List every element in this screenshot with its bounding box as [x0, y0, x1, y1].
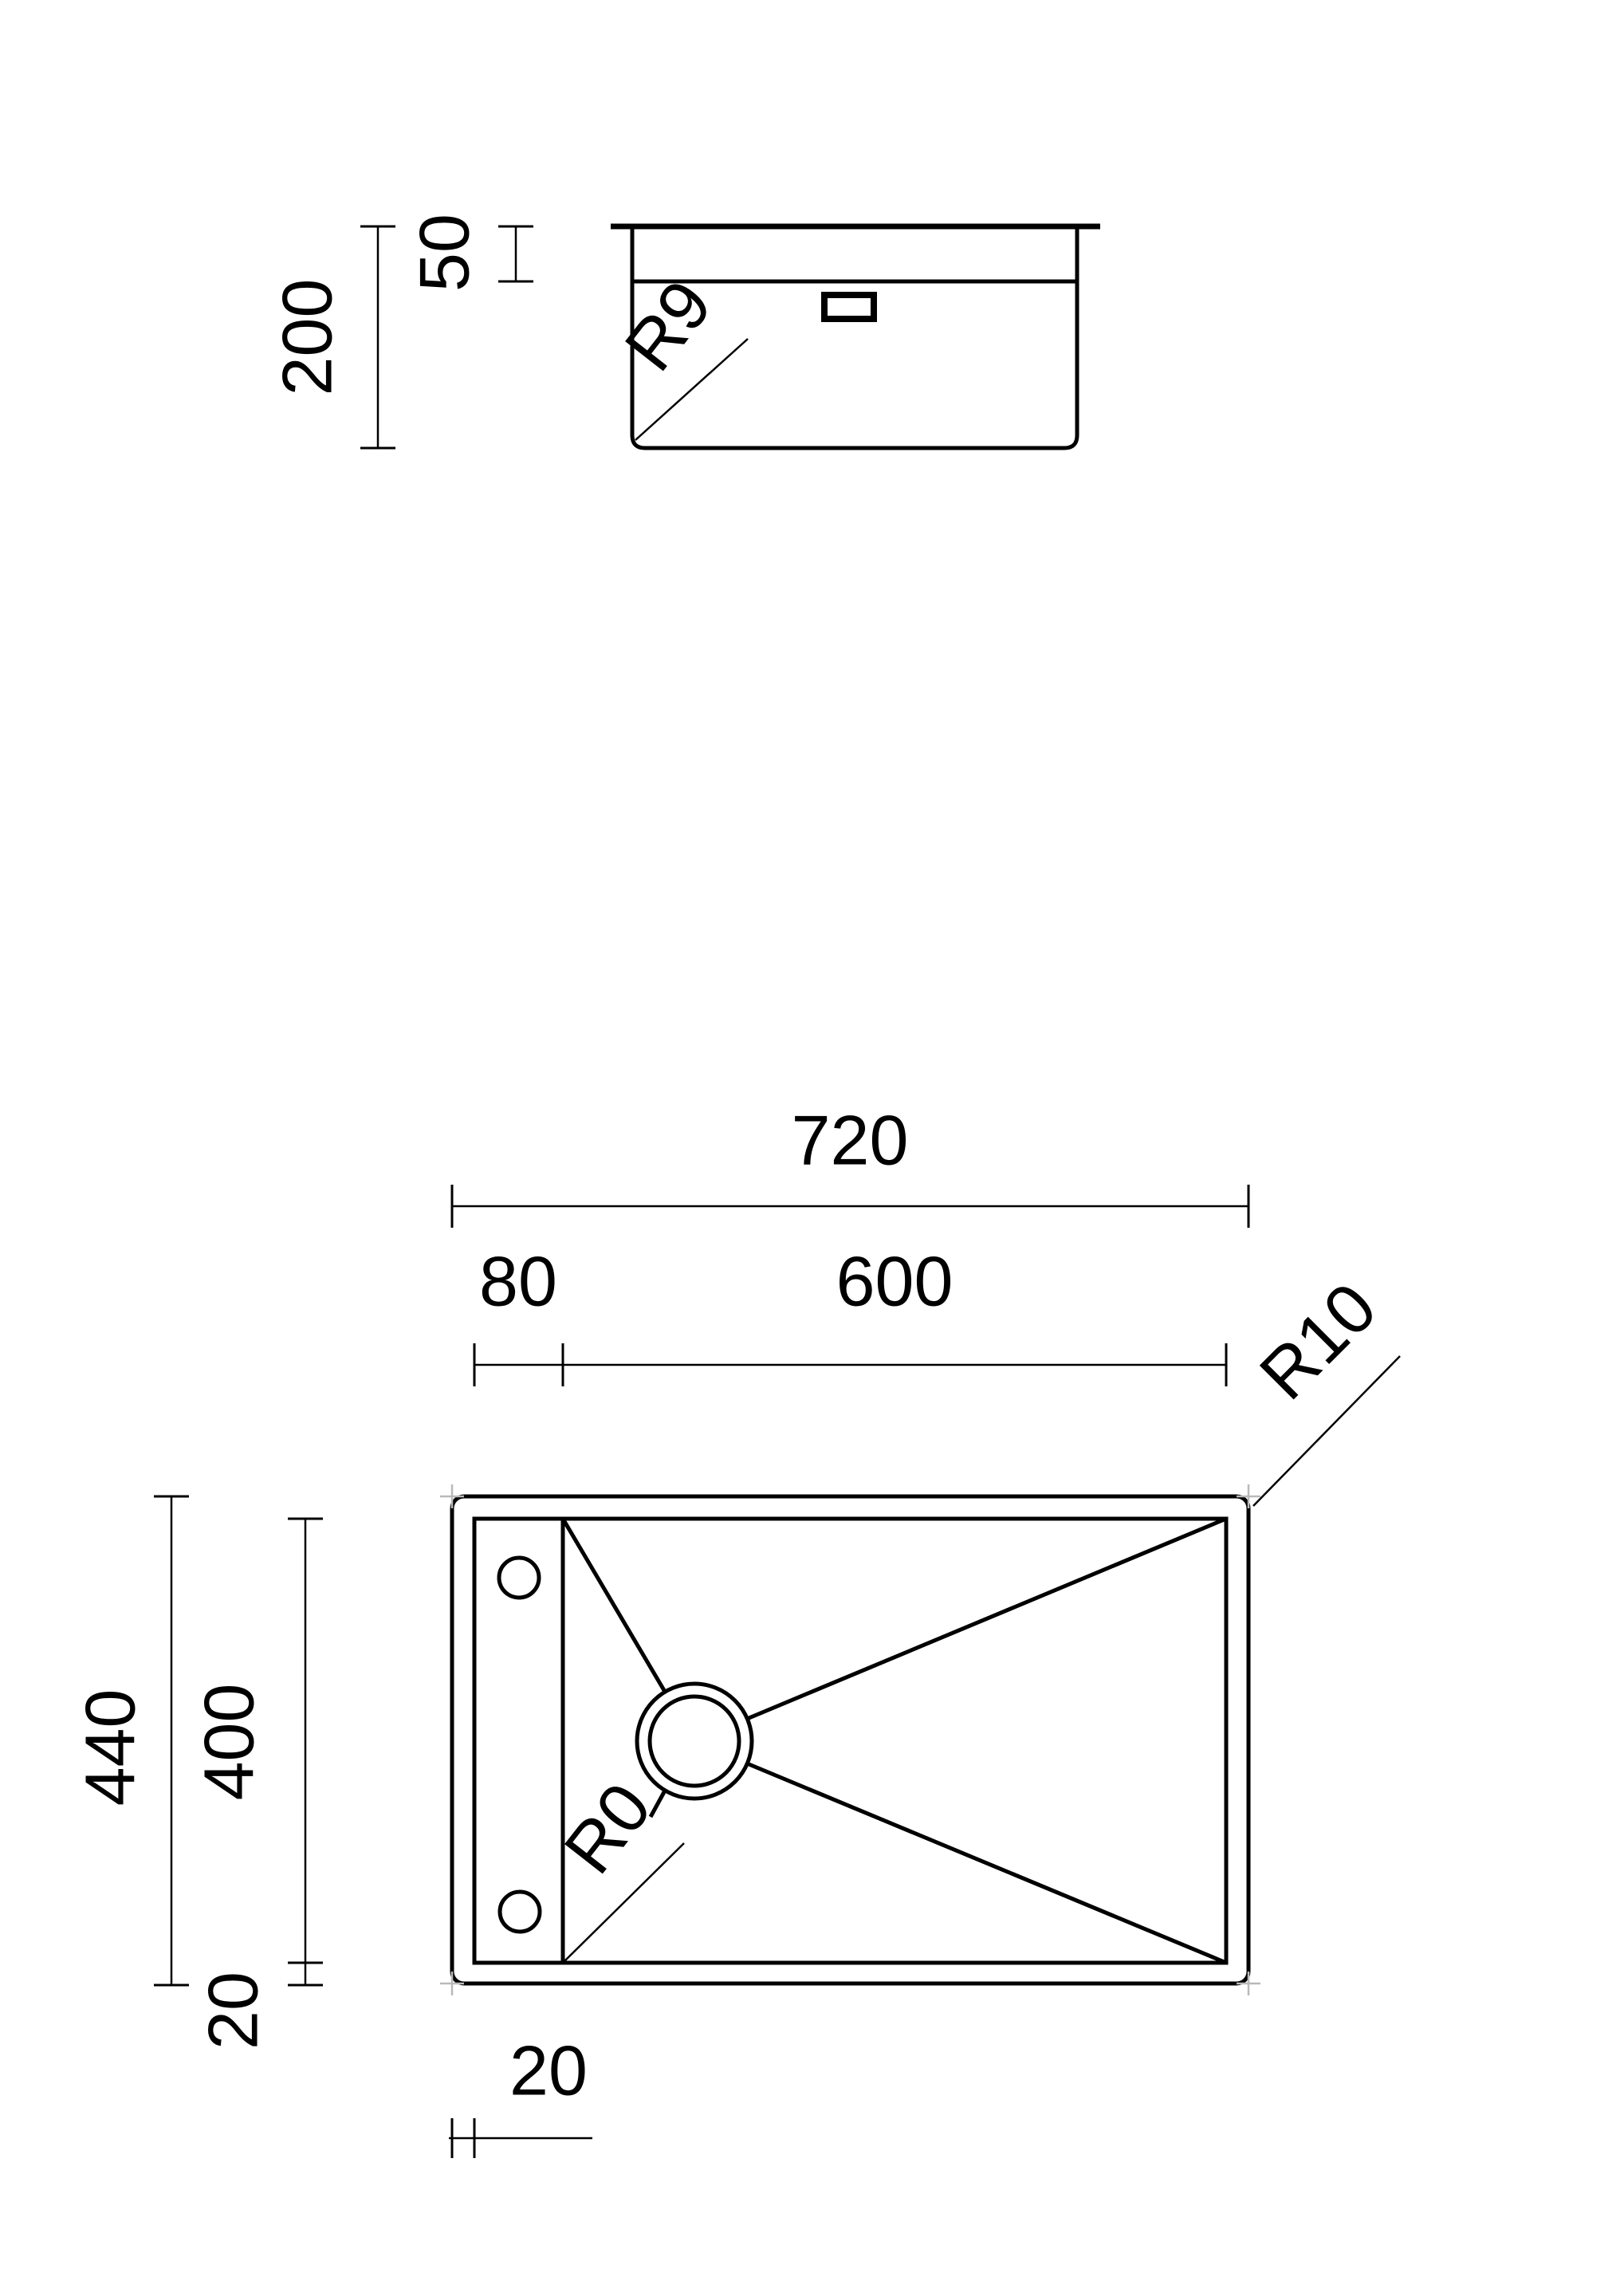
plan-outer-rect [452, 1496, 1248, 1983]
drain-inner-circle [650, 1696, 739, 1786]
label-bowl-corner-radius: R0 [549, 1768, 666, 1888]
label-ledge-width: 80 [479, 1242, 557, 1321]
crease-top-right [747, 1519, 1226, 1719]
label-left-rim-width: 20 [194, 1972, 273, 2050]
drain-outer-circle [637, 1684, 752, 1799]
drawing-sheet: R9 200 50 [0, 0, 1624, 2296]
label-bowl-depth: 400 [190, 1684, 269, 1801]
label-bottom-rim-width: 20 [509, 2031, 588, 2110]
label-bowl-width: 600 [836, 1242, 954, 1321]
label-plan-total-width: 720 [792, 1101, 909, 1180]
tap-hole-bottom [500, 1892, 540, 1932]
section-view: R9 200 50 [268, 214, 1101, 448]
tap-hole-top [499, 1558, 539, 1598]
label-section-corner-radius: R9 [609, 265, 726, 385]
corner-marker-top-left [440, 1484, 464, 1508]
label-plan-total-depth: 440 [71, 1689, 150, 1807]
corner-marker-bottom-right [1237, 1972, 1260, 1995]
label-plan-outer-corner-radius: R10 [1245, 1268, 1391, 1414]
plan-view: R10 R0 720 80 600 440 [71, 1101, 1401, 2159]
corner-marker-top-right [1237, 1484, 1260, 1508]
sink-technical-drawing: R9 200 50 [0, 0, 1624, 2296]
crease-top-left [563, 1519, 665, 1692]
section-overflow-rect [824, 295, 874, 319]
crease-bottom-right [747, 1763, 1226, 1963]
label-section-total-depth: 200 [268, 279, 347, 396]
plan-bowl-rect [474, 1519, 1226, 1963]
corner-marker-bottom-left [440, 1972, 464, 1995]
label-section-rim-depth: 50 [405, 214, 484, 292]
